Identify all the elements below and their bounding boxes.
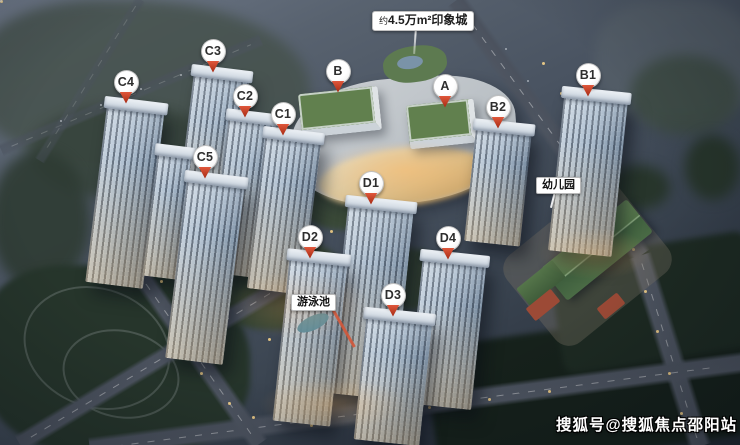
- banner-unit: m²: [417, 13, 432, 27]
- tower-b2: [464, 125, 532, 246]
- plaza-glow: [538, 228, 653, 280]
- watermark-text: 搜狐号@搜狐焦点邵阳站: [556, 413, 737, 435]
- banner-name: 印象城: [431, 13, 467, 27]
- street-lights-dim: [0, 0, 2, 2]
- banner-value: 4.5万: [388, 13, 417, 27]
- courtyard-glow: [230, 270, 370, 340]
- area-banner: 约4.5万m²印象城: [372, 11, 474, 31]
- pin-label: D4: [436, 226, 461, 251]
- mall-block-b: [298, 86, 382, 138]
- trees-right: [685, 135, 740, 200]
- plaza-glow: [258, 378, 408, 430]
- mall-warm-glow: [320, 140, 490, 200]
- aerial-render-image: 约4.5万m²印象城 C4C3C2C1C5BAB2B1D1D2D4D3 幼儿园游…: [0, 0, 740, 445]
- banner-prefix: 约: [379, 16, 388, 26]
- trees-top-right: [630, 55, 740, 135]
- pin-label: B: [326, 59, 351, 84]
